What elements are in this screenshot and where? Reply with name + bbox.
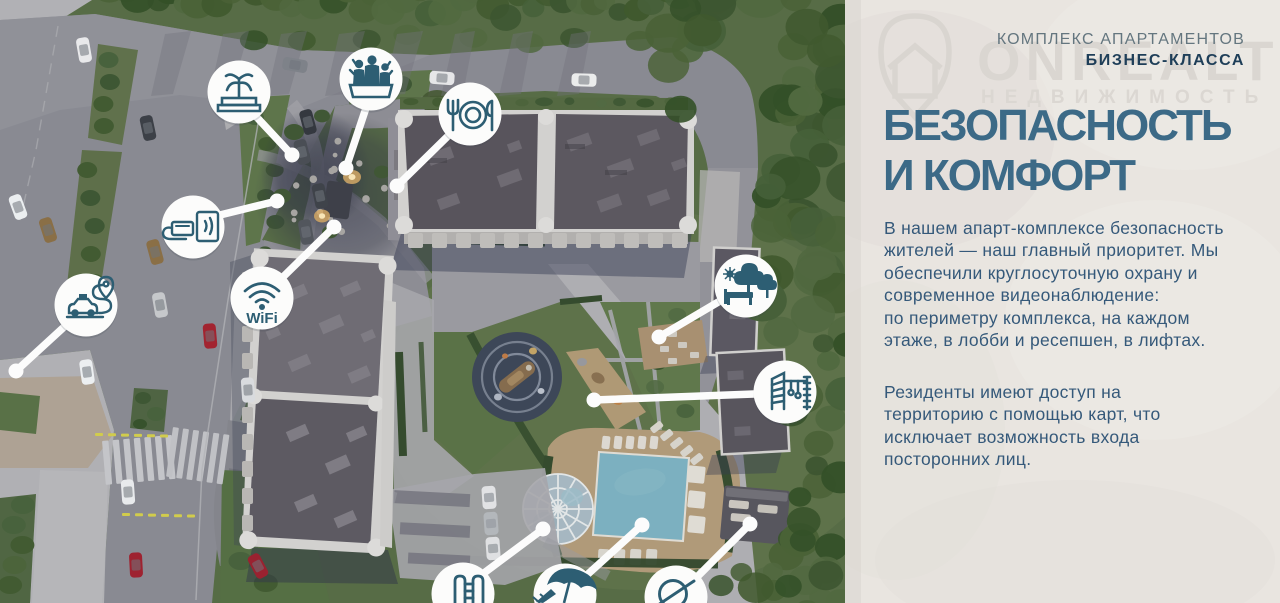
svg-text:WiFi: WiFi xyxy=(246,310,278,327)
